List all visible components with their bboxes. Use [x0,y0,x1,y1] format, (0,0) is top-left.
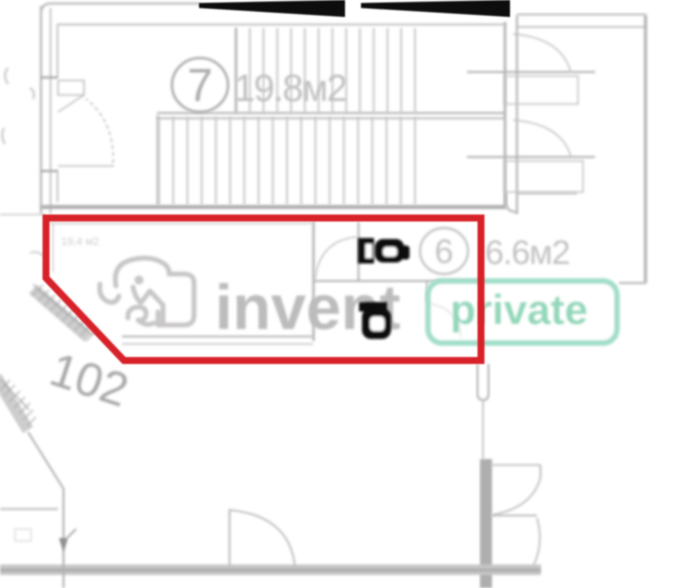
svg-text:6: 6 [435,233,454,271]
svg-text:7: 7 [187,59,213,111]
svg-text:private: private [450,286,588,333]
svg-text:6.6м2: 6.6м2 [485,234,570,272]
svg-text:19.8м2: 19.8м2 [234,68,347,110]
svg-text:19,4 м2: 19,4 м2 [61,236,99,248]
